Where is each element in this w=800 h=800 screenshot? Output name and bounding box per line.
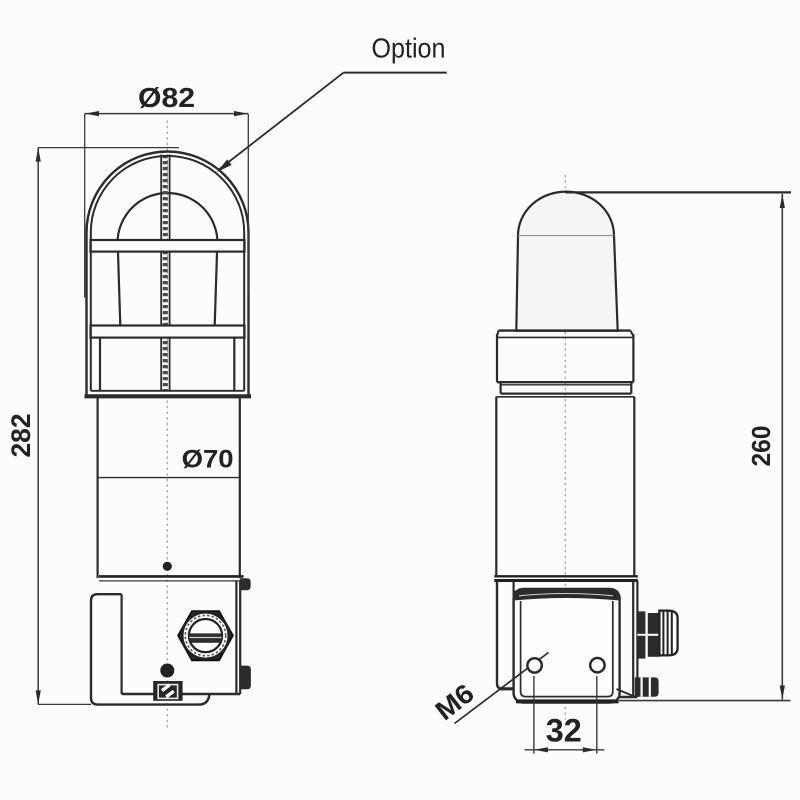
svg-text:32: 32 [546,713,582,749]
svg-text:Ø82: Ø82 [138,82,195,113]
svg-text:Ø70: Ø70 [182,446,234,474]
svg-text:260: 260 [746,426,776,467]
svg-text:Option: Option [372,33,446,64]
svg-text:282: 282 [6,414,36,458]
